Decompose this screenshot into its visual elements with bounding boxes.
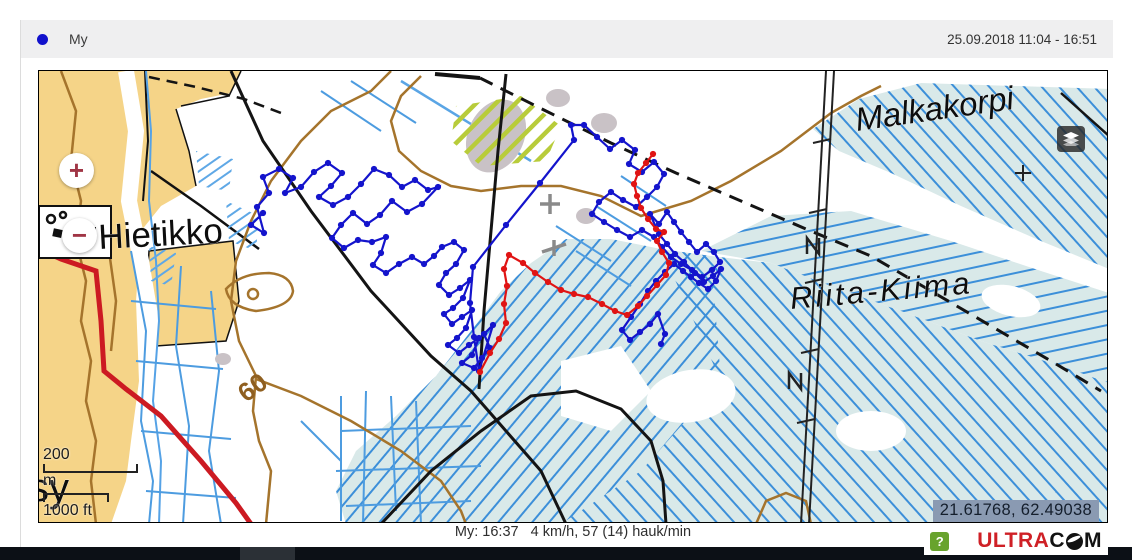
gps-track-point-blue bbox=[431, 253, 437, 259]
gps-track-point-blue bbox=[325, 160, 331, 166]
gps-track-point-blue bbox=[537, 180, 543, 186]
gps-track-point-blue bbox=[664, 209, 670, 215]
zoom-in-button[interactable]: + bbox=[59, 153, 94, 188]
zoom-out-button[interactable]: − bbox=[62, 218, 97, 253]
logo-text-c: C bbox=[1049, 529, 1065, 553]
gps-track-point-blue bbox=[688, 274, 694, 280]
gps-track-point-blue bbox=[651, 159, 657, 165]
gps-track-point-blue bbox=[632, 147, 638, 153]
gps-track-point-blue bbox=[404, 209, 410, 215]
gps-track-point-red bbox=[501, 301, 507, 307]
scale-metric-value: 200 bbox=[43, 447, 138, 464]
gps-track-point-red bbox=[659, 249, 665, 255]
gps-track-point-blue bbox=[311, 169, 317, 175]
gps-track-point-blue bbox=[355, 237, 361, 243]
topographic-map[interactable]: 60 bbox=[39, 71, 1108, 523]
gps-track-point-blue bbox=[341, 245, 347, 251]
label-hietikko: Hietikko bbox=[97, 212, 223, 257]
gps-track-point-blue bbox=[371, 166, 377, 172]
gps-track-point-blue bbox=[626, 161, 632, 167]
gps-track-point-blue bbox=[445, 342, 451, 348]
gps-track-point-blue bbox=[644, 194, 650, 200]
gps-track-point-blue bbox=[443, 270, 449, 276]
gps-track-point-blue bbox=[439, 244, 445, 250]
gps-track-point-red bbox=[487, 350, 493, 356]
gps-track-point-red bbox=[635, 303, 641, 309]
page-divider bbox=[20, 20, 21, 547]
gps-track-point-blue bbox=[282, 190, 288, 196]
gps-track-point-blue bbox=[350, 210, 356, 216]
gps-track-point-red bbox=[612, 308, 618, 314]
gps-track-point-blue bbox=[435, 184, 441, 190]
scale-bar-metric bbox=[43, 464, 138, 473]
gps-track-point-blue bbox=[608, 189, 614, 195]
gps-track-point-red bbox=[503, 320, 509, 326]
gps-track-point-red bbox=[520, 260, 526, 266]
gps-track-point-blue bbox=[316, 194, 322, 200]
map-container[interactable]: 60 bbox=[38, 70, 1108, 523]
gps-track-point-red bbox=[624, 312, 630, 318]
scale-control: 200 m 1000 ft bbox=[43, 447, 138, 520]
gps-track-point-blue bbox=[503, 222, 509, 228]
gps-track-point-blue bbox=[339, 170, 345, 176]
gps-track-point-blue bbox=[453, 261, 459, 267]
device-legend[interactable]: My bbox=[37, 31, 88, 47]
gps-track-point-blue bbox=[298, 184, 304, 190]
gps-track-point-blue bbox=[694, 249, 700, 255]
gps-track-point-blue bbox=[459, 314, 465, 320]
gps-track-point-blue bbox=[449, 321, 455, 327]
gps-track-point-blue bbox=[658, 341, 664, 347]
gps-track-point-blue bbox=[467, 277, 473, 283]
gps-track-point-red bbox=[496, 336, 502, 342]
gps-track-point-red bbox=[645, 216, 651, 222]
gps-track-point-blue bbox=[696, 280, 702, 286]
gps-track-point-red bbox=[654, 238, 660, 244]
scale-imperial-label: 1000 ft bbox=[43, 503, 138, 520]
gps-track-point-blue bbox=[662, 331, 668, 337]
gps-track-point-blue bbox=[589, 211, 595, 217]
gps-track-point-blue bbox=[568, 122, 574, 128]
gps-track-point-red bbox=[654, 282, 660, 288]
gps-track-point-blue bbox=[460, 295, 466, 301]
logo-text-m: M bbox=[1084, 529, 1102, 553]
legend-bar: My 25.09.2018 11:04 - 16:51 bbox=[21, 20, 1113, 58]
gps-track-point-blue bbox=[457, 285, 463, 291]
gps-track-point-blue bbox=[672, 251, 678, 257]
gps-track-point-blue bbox=[703, 241, 709, 247]
gps-track-point-blue bbox=[421, 261, 427, 267]
gps-track-point-blue bbox=[369, 239, 375, 245]
gps-track-point-blue bbox=[471, 334, 477, 340]
gps-track-point-blue bbox=[466, 342, 472, 348]
gps-track-point-blue bbox=[463, 325, 469, 331]
gps-track-point-blue bbox=[386, 172, 392, 178]
gps-track-point-red bbox=[653, 226, 659, 232]
gps-track-point-blue bbox=[328, 183, 334, 189]
gps-track-point-red bbox=[643, 160, 649, 166]
gps-track-point-blue bbox=[705, 286, 711, 292]
gps-track-point-red bbox=[558, 287, 564, 293]
gps-track-point-blue bbox=[260, 174, 266, 180]
coordinates-readout: 21.61768, 62.49038 bbox=[933, 500, 1099, 522]
gps-track-point-blue bbox=[364, 221, 370, 227]
gps-track-point-red bbox=[644, 293, 650, 299]
gps-track-point-blue bbox=[370, 262, 376, 268]
gps-track-point-red bbox=[663, 272, 669, 278]
gps-track-point-blue bbox=[479, 355, 485, 361]
gps-track-point-blue bbox=[596, 199, 602, 205]
gps-track-point-red bbox=[585, 294, 591, 300]
scale-metric-unit: m bbox=[43, 473, 138, 490]
gps-track-point-blue bbox=[329, 235, 335, 241]
gps-track-point-blue bbox=[671, 219, 677, 225]
gps-track-point-blue bbox=[607, 146, 613, 152]
scale-bar-imperial bbox=[43, 493, 109, 502]
gps-track-point-blue bbox=[461, 247, 467, 253]
gps-track-point-blue bbox=[627, 337, 633, 343]
gps-track-point-red bbox=[661, 229, 667, 235]
gps-track-point-blue bbox=[655, 311, 661, 317]
device-color-dot bbox=[37, 34, 48, 45]
gps-track-point-blue bbox=[481, 331, 487, 337]
gps-track-point-blue bbox=[467, 300, 473, 306]
gps-track-point-blue bbox=[680, 268, 686, 274]
gps-track-point-blue bbox=[412, 177, 418, 183]
gps-track-point-blue bbox=[681, 259, 687, 265]
gps-track-point-blue bbox=[717, 259, 723, 265]
gps-track-point-blue bbox=[678, 229, 684, 235]
gps-track-point-red bbox=[504, 283, 510, 289]
gps-track-point-blue bbox=[620, 197, 626, 203]
gps-track-point-blue bbox=[409, 254, 415, 260]
gps-track-point-blue bbox=[661, 171, 667, 177]
gps-track-point-red bbox=[545, 279, 551, 285]
gps-track-point-blue bbox=[338, 222, 344, 228]
gps-track-point-red bbox=[571, 291, 577, 297]
gps-track-point-blue bbox=[396, 261, 402, 267]
gps-track-point-blue bbox=[470, 264, 476, 270]
gps-track-point-red bbox=[634, 193, 640, 199]
layers-icon bbox=[1063, 132, 1079, 146]
gps-track-point-red bbox=[635, 170, 641, 176]
gps-track-point-blue bbox=[345, 194, 351, 200]
gps-track-point-blue bbox=[459, 360, 465, 366]
gps-track-point-blue bbox=[711, 249, 717, 255]
gps-track-point-blue bbox=[571, 137, 577, 143]
gps-track-point-blue bbox=[454, 335, 460, 341]
gps-track-point-blue bbox=[446, 292, 452, 298]
gps-track-point-blue bbox=[399, 184, 405, 190]
gps-track-point-blue bbox=[654, 184, 660, 190]
gps-track-point-blue bbox=[627, 234, 633, 240]
gps-track-point-blue bbox=[358, 181, 364, 187]
gps-track-point-blue bbox=[456, 350, 462, 356]
gps-track-point-blue bbox=[389, 198, 395, 204]
gps-track-point-red bbox=[631, 181, 637, 187]
gps-track-point-blue bbox=[377, 212, 383, 218]
gps-track-point-blue bbox=[639, 227, 645, 233]
gps-track-point-blue bbox=[619, 327, 625, 333]
gps-track-point-blue bbox=[436, 282, 442, 288]
gps-track-point-blue bbox=[441, 311, 447, 317]
gps-track-point-blue bbox=[248, 222, 254, 228]
gps-track-point-blue bbox=[290, 175, 296, 181]
ultracom-logo: ULTRA C M bbox=[977, 529, 1102, 553]
gps-track-point-blue bbox=[581, 122, 587, 128]
gps-track-point-red bbox=[599, 301, 605, 307]
gps-track-point-blue bbox=[713, 278, 719, 284]
gps-track-point-blue bbox=[490, 322, 496, 328]
gps-track-point-blue bbox=[619, 137, 625, 143]
gps-track-point-blue bbox=[378, 250, 384, 256]
gps-track-point-blue bbox=[419, 201, 425, 207]
gps-track-point-blue bbox=[718, 266, 724, 272]
gps-track-point-blue bbox=[601, 219, 607, 225]
gps-track-point-blue bbox=[469, 352, 475, 358]
gps-track-point-red bbox=[477, 369, 483, 375]
gps-track-point-blue bbox=[647, 321, 653, 327]
gps-track-point-red bbox=[650, 151, 656, 157]
gps-track-point-blue bbox=[276, 166, 282, 172]
taskbar-segment bbox=[240, 547, 295, 560]
gps-track-point-red bbox=[501, 266, 507, 272]
gps-track-point-blue bbox=[261, 230, 267, 236]
date-range: 25.09.2018 11:04 - 16:51 bbox=[947, 32, 1097, 47]
logo-text-ultra: ULTRA bbox=[977, 529, 1049, 553]
layers-button[interactable] bbox=[1057, 126, 1085, 152]
gps-track-point-red bbox=[506, 252, 512, 258]
gps-track-point-red bbox=[666, 260, 672, 266]
gps-track-point-blue bbox=[637, 329, 643, 335]
gps-track-point-blue bbox=[594, 134, 600, 140]
gps-track-point-blue bbox=[469, 307, 475, 313]
gps-track-point-blue bbox=[686, 239, 692, 245]
gps-track-point-blue bbox=[383, 234, 389, 240]
gps-track-point-blue bbox=[330, 202, 336, 208]
gps-track-point-blue bbox=[709, 267, 715, 273]
gps-track-point-blue bbox=[254, 204, 260, 210]
gps-track-point-red bbox=[638, 205, 644, 211]
app-window: My 25.09.2018 11:04 - 16:51 bbox=[0, 0, 1132, 560]
gps-track-point-blue bbox=[260, 210, 266, 216]
gps-track-point-blue bbox=[614, 227, 620, 233]
gps-track-point-blue bbox=[450, 305, 456, 311]
brand-area: ? ULTRA C M bbox=[924, 527, 1108, 555]
gps-track-point-blue bbox=[266, 190, 272, 196]
gps-track-point-blue bbox=[425, 187, 431, 193]
gps-track-point-blue bbox=[451, 239, 457, 245]
gps-track-point-blue bbox=[383, 270, 389, 276]
gps-track-point-red bbox=[532, 270, 538, 276]
gps-track-point-blue bbox=[664, 241, 670, 247]
help-button[interactable]: ? bbox=[930, 532, 949, 551]
device-name: My bbox=[69, 31, 88, 47]
logo-o-globe-icon bbox=[1066, 533, 1083, 550]
